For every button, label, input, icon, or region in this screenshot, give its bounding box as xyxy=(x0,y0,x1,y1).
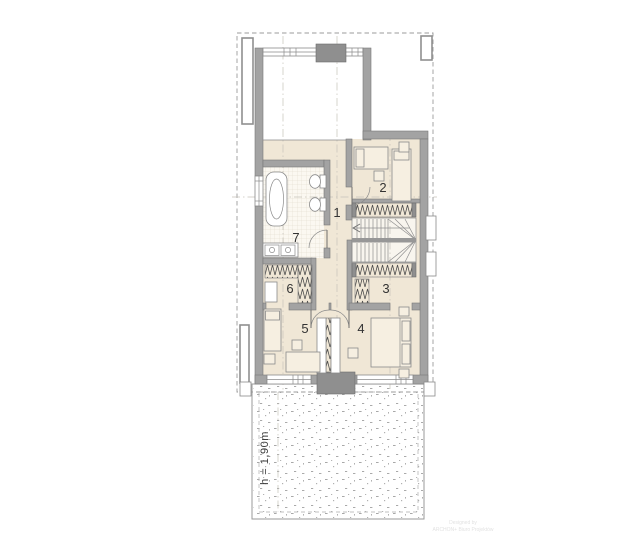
window-box-right-upper xyxy=(426,216,436,240)
pillar-bottom-left xyxy=(240,325,249,383)
watermark: Designed by ARCHON+ Biuro Projektów xyxy=(433,520,494,533)
window-left xyxy=(255,176,263,206)
wardrobe-closet-right-top xyxy=(356,263,412,277)
nightstand-bedroom-5 xyxy=(264,354,275,364)
chimney-top xyxy=(316,44,346,62)
double-sink xyxy=(263,243,298,257)
nightstand-bedroom-4a xyxy=(399,307,409,316)
wardrobe-closet-left-top xyxy=(265,265,298,278)
nightstand-bedroom-4b xyxy=(399,369,409,378)
post-terrace-right xyxy=(424,382,435,396)
watermark-line1: Designed by xyxy=(449,520,477,526)
pillar-top-left xyxy=(242,38,253,124)
floor-plan-svg: h = 1,90m xyxy=(0,0,638,556)
watermark-line2: ARCHON+ Biuro Projektów xyxy=(433,527,494,533)
window-box-right-lower xyxy=(426,252,436,276)
cabinet-closet-left xyxy=(265,282,277,302)
bed-bedroom-4 xyxy=(371,318,411,367)
stair-handrail xyxy=(352,238,416,243)
partition-wall-bedrooms xyxy=(326,318,331,373)
room-label-bedroom-top: 2 xyxy=(379,180,386,195)
chair-bedroom-5 xyxy=(292,340,302,350)
room-label-bedroom-left: 5 xyxy=(301,321,308,336)
window-band-top xyxy=(263,48,363,56)
void-over-living-room xyxy=(263,55,363,140)
room-label-bathroom: 7 xyxy=(292,230,299,245)
room-label-closet-right: 3 xyxy=(382,281,389,296)
bed-bedroom-2a xyxy=(354,147,388,169)
pillar-top-right xyxy=(421,36,432,60)
bed-bedroom-5 xyxy=(264,309,281,351)
terrace-area: h = 1,90m xyxy=(252,384,424,519)
toilet xyxy=(310,175,327,189)
wardrobe-bedroom-2 xyxy=(356,203,412,217)
room-label-bedroom-right: 4 xyxy=(357,321,364,336)
chair-bedroom-4 xyxy=(348,348,358,358)
room-label-closet-left: 6 xyxy=(286,281,293,296)
post-terrace-left xyxy=(240,382,251,396)
desk-bedroom-5 xyxy=(286,352,320,372)
cabinet-bedroom-2 xyxy=(399,142,409,152)
wardrobe-closet-left-side xyxy=(298,265,312,303)
floor-plan-canvas: h = 1,90m xyxy=(0,0,638,556)
window-bottom-left xyxy=(267,375,311,384)
terrace-height-annotation: h = 1,90m xyxy=(259,431,271,485)
wardrobe-closet-right-side xyxy=(355,279,369,303)
bed-bedroom-2b xyxy=(392,149,411,201)
room-label-hall: 1 xyxy=(333,205,340,220)
bidet xyxy=(310,198,327,212)
chimney-bottom xyxy=(317,372,355,394)
wardrobe-bedroom-right-partition xyxy=(331,318,340,373)
